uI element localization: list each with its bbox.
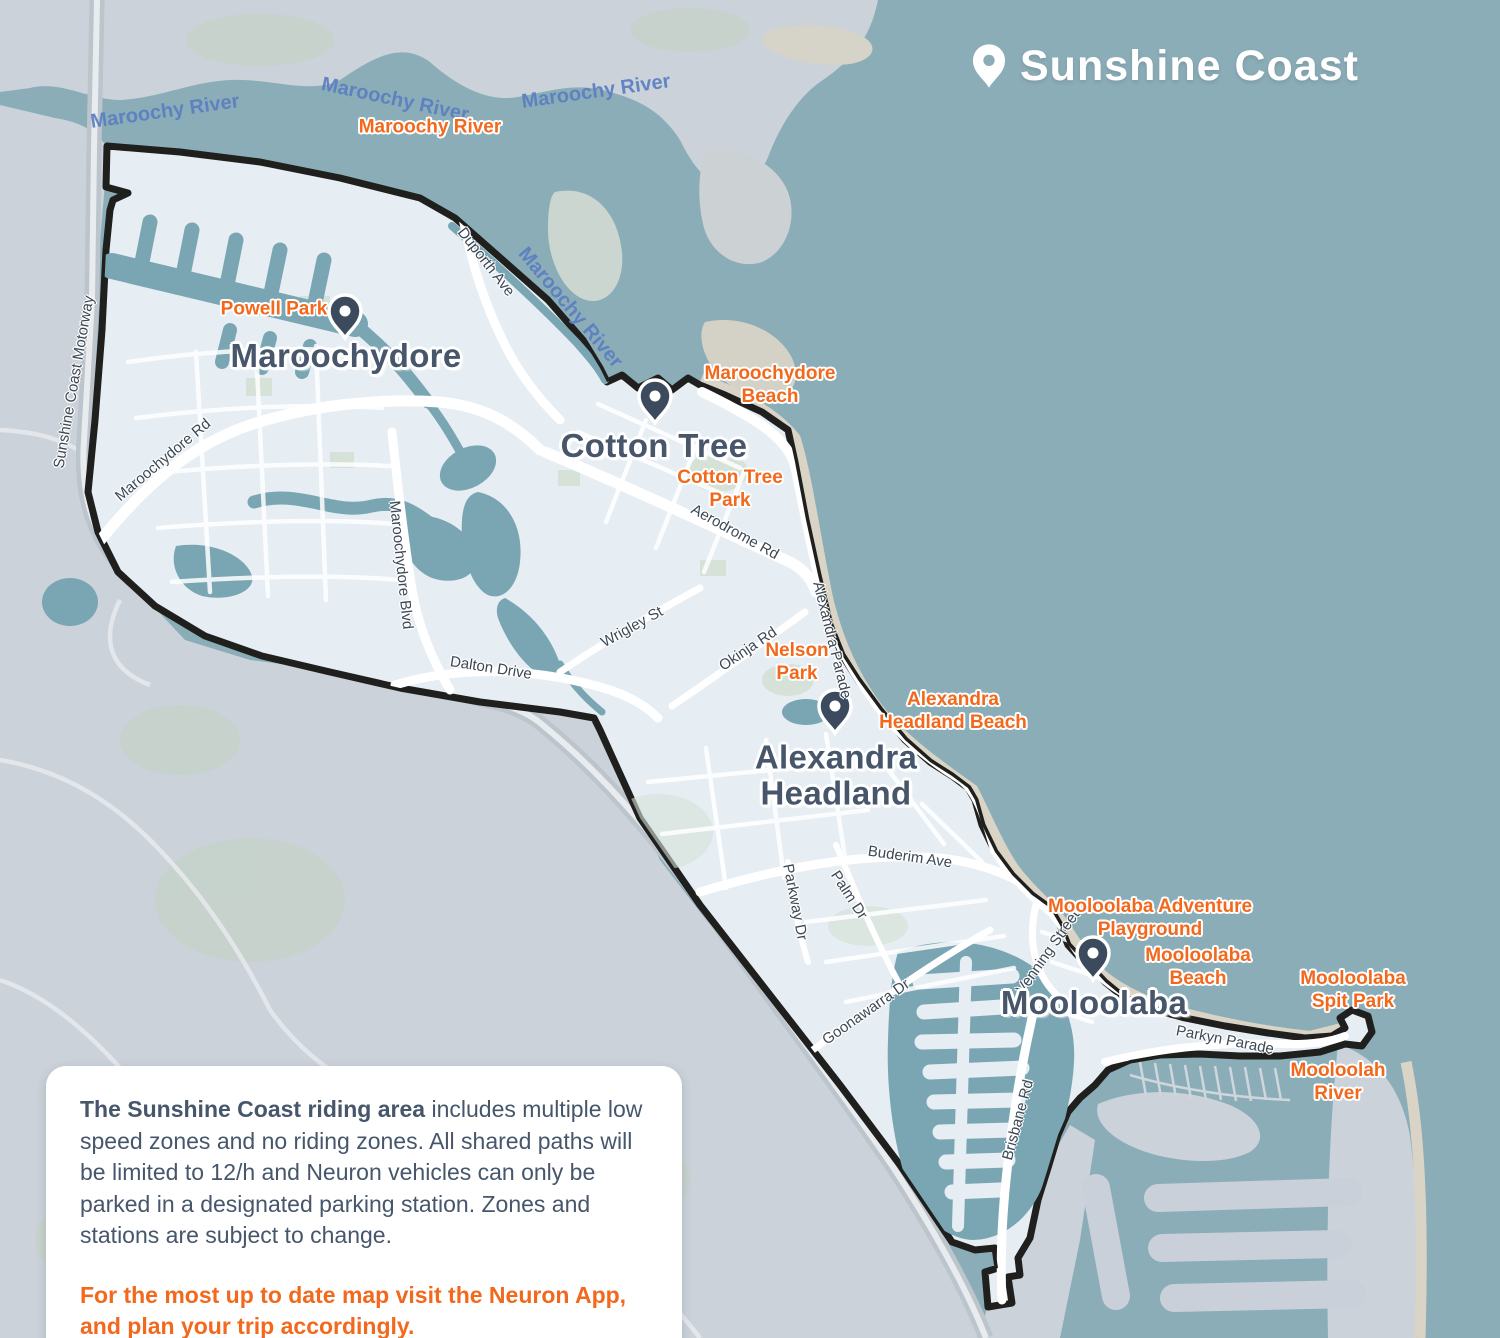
poi-label-maroochy-river: Maroochy River [359, 117, 502, 140]
info-card-cta: For the most up to date map visit the Ne… [80, 1280, 648, 1338]
info-card-body: The Sunshine Coast riding area includes … [80, 1094, 648, 1252]
poi-label-mooloolaba-spit-park: Mooloolaba Spit Park [1300, 968, 1406, 1014]
place-label-alexandra-headland: Alexandra Headland [755, 740, 917, 813]
poi-label-powell-park: Powell Park [221, 299, 328, 322]
pond-west [42, 578, 98, 626]
sunshine-coast-map: Maroochy River Maroochy River Maroochy R… [0, 0, 1500, 1338]
poi-label-mooloolaba-adventure-playground: Mooloolaba Adventure Playground [1048, 896, 1252, 942]
info-card-lead-bold: The Sunshine Coast riding area [80, 1096, 425, 1122]
location-pin-icon [972, 43, 1006, 91]
poi-label-maroochydore-beach: Maroochydore Beach [705, 363, 836, 409]
poi-label-mooloolah-river: Mooloolah River [1291, 1060, 1386, 1106]
place-label-cotton-tree: Cotton Tree [561, 428, 748, 464]
place-label-mooloolaba: Mooloolaba [1001, 985, 1187, 1021]
map-title: Sunshine Coast [972, 42, 1359, 91]
poi-label-cotton-tree-park: Cotton Tree Park [677, 467, 783, 513]
poi-label-alexandra-headland-beach: Alexandra Headland Beach [879, 689, 1027, 735]
place-label-maroochydore: Maroochydore [231, 338, 462, 374]
info-card: The Sunshine Coast riding area includes … [46, 1066, 682, 1338]
poi-label-nelson-park: Nelson Park [765, 640, 828, 686]
map-title-text: Sunshine Coast [1020, 42, 1359, 91]
